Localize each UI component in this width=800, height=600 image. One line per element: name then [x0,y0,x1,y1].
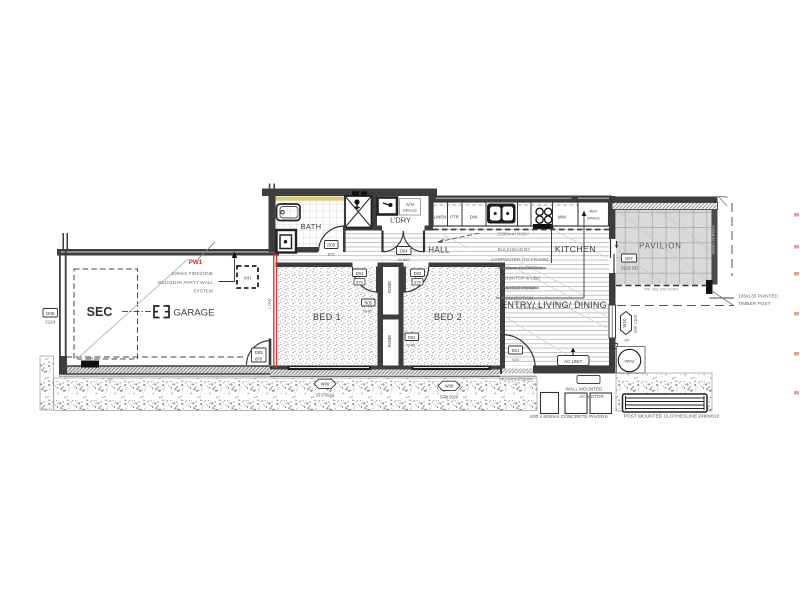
svg-text:R04: R04 [408,335,416,340]
svg-text:BATH: BATH [301,222,322,231]
svg-text:600 x 600mm CONCRETE PAVERS: 600 x 600mm CONCRETE PAVERS [530,414,607,420]
svg-text:870: 870 [255,357,263,362]
svg-text:870: 870 [414,280,421,285]
svg-text:SHG: SHG [407,343,416,348]
svg-text:SFD 0920: SFD 0920 [440,395,459,400]
svg-text:D05: D05 [255,350,263,355]
svg-text:PAVILION: PAVILION [639,242,682,251]
svg-text:DP: DP [107,378,113,382]
svg-text:920: 920 [512,357,519,362]
svg-text:1800H SCREEN: 1800H SCREEN [711,225,716,255]
svg-text:D04: D04 [356,271,364,276]
svg-text:W10: W10 [622,318,627,328]
svg-text:2118 SD: 2118 SD [621,266,638,271]
svg-text:BED 1: BED 1 [313,312,341,322]
svg-text:PTR: PTR [450,215,459,220]
svg-text:ENTRY/ LIVING/ DINING: ENTRY/ LIVING/ DINING [501,300,607,310]
svg-text:POST MOUNTED CLOTHESLINE 2490x: POST MOUNTED CLOTHESLINE 2490x610 [624,414,720,420]
svg-text:SUB: SUB [87,356,95,360]
svg-text:LINEN: LINEN [434,215,447,220]
svg-text:DP GRATED DRAIN: DP GRATED DRAIN [499,378,533,382]
svg-text:2200mm HIGH: 2200mm HIGH [497,232,528,237]
svg-text:D02: D02 [414,271,422,276]
svg-text:LOW: LOW [267,298,272,309]
svg-text:HALL: HALL [428,246,450,255]
svg-text:DW: DW [470,215,478,220]
svg-text:TIMBER POST: TIMBER POST [738,301,771,307]
svg-text:SYSTEM: SYSTEM [193,289,213,295]
svg-text:WMU: WMU [625,358,635,363]
svg-text:R05: R05 [364,301,372,306]
svg-text:SPACE: SPACE [587,216,600,221]
svg-text:MH: MH [244,276,251,281]
svg-text:870: 870 [356,280,363,285]
svg-text:DP: DP [625,339,631,343]
svg-text:ROBE: ROBE [387,281,392,294]
svg-text:KITCHEN: KITCHEN [555,244,596,254]
svg-text:PW1: PW1 [189,259,203,266]
svg-text:GARAGE: GARAGE [173,308,214,319]
svg-text:L’DRY: L’DRY [390,216,411,225]
svg-text:W09: W09 [321,382,330,387]
svg-text:WALL MOUNTED: WALL MOUNTED [566,387,603,392]
svg-text:230mm FIREZONE: 230mm FIREZONE [171,271,213,277]
svg-text:135x135 PAINTED: 135x135 PAINTED [738,294,779,300]
svg-text:SEC: SEC [87,305,113,319]
svg-text:D04: D04 [400,249,408,254]
svg-text:COOKTOP & UBO: COOKTOP & UBO [501,276,541,281]
svg-text:D05: D05 [327,243,335,248]
svg-text:D07: D07 [625,256,633,261]
svg-text:W/M: W/M [406,202,415,207]
svg-text:REF: REF [590,209,598,214]
svg-text:ROBE: ROBE [387,335,392,348]
svg-text:PRL SBL D/W SCRN: PRL SBL D/W SCRN [644,288,678,292]
svg-text:W08: W08 [445,384,454,389]
svg-text:BS1031HR PARTY WALL: BS1031HR PARTY WALL [158,280,213,286]
svg-text:SHG: SHG [363,309,372,314]
svg-text:SFS 0924: SFS 0924 [316,393,335,398]
svg-text:CARPENTER (TO FRAME): CARPENTER (TO FRAME) [491,257,549,262]
svg-text:D01: D01 [512,348,520,353]
svg-text:BED 2: BED 2 [434,312,462,322]
svg-text:SPACE: SPACE [403,208,417,213]
svg-text:D06: D06 [46,311,55,316]
svg-text:2x 820: 2x 820 [398,257,411,262]
svg-text:BULKHEAD BY: BULKHEAD BY [498,247,532,252]
svg-text:MW: MW [558,215,567,220]
svg-text:AC MOTOR: AC MOTOR [579,394,604,399]
svg-text:W/F 1309: W/F 1309 [633,314,638,333]
svg-text:AC UNIT: AC UNIT [564,359,583,364]
svg-text:870: 870 [328,252,335,257]
svg-text:2124: 2124 [45,320,55,325]
